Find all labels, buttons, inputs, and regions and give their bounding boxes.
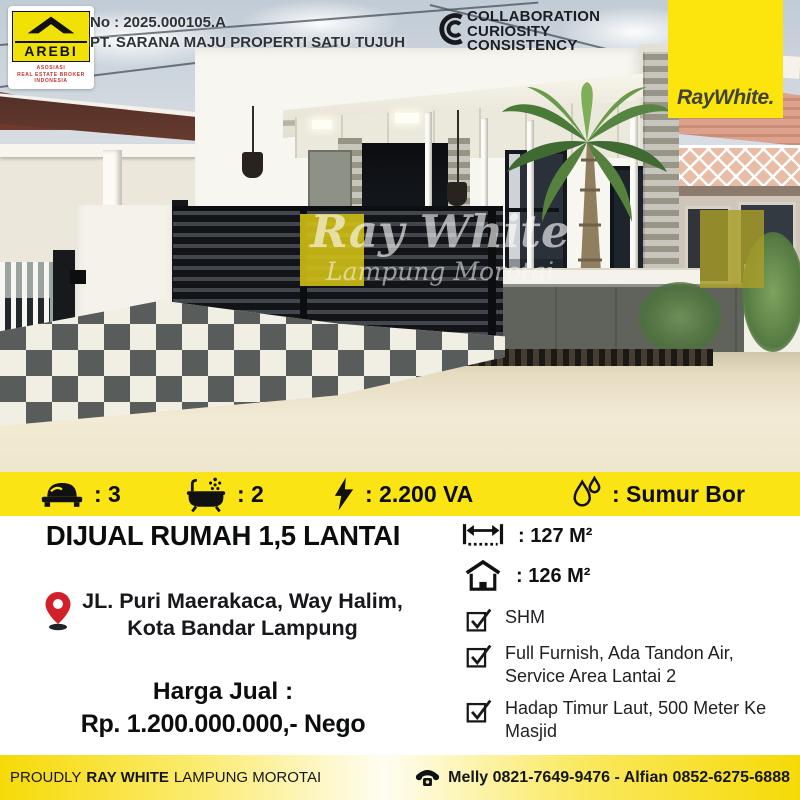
ceiling-light xyxy=(312,120,332,129)
triple-c-icon xyxy=(437,10,464,48)
location-pin-icon xyxy=(43,591,73,631)
checklist-item: Hadap Timur Laut, 500 Meter Ke Masjid xyxy=(466,697,786,743)
checklist-item: SHM xyxy=(466,606,786,633)
values-logo: COLLABORATION CURIOSITY CONSISTENCY xyxy=(437,10,600,54)
water-value: : Sumur Bor xyxy=(612,481,745,508)
footer-office: PROUDLY RAY WHITE LAMPUNG MOROTAI xyxy=(10,769,321,786)
address-lines: JL. Puri Maerakaca, Way Halim, Kota Band… xyxy=(82,588,403,642)
listing-header-text: No : 2025.000105.A PT. SARANA MAJU PROPE… xyxy=(90,13,405,53)
bedrooms-value: : 3 xyxy=(94,481,121,508)
phone-icon xyxy=(415,768,440,788)
feature-strip: : 3 : 2 : 2.200 VA : Sumur Bor xyxy=(0,472,800,516)
neighbor-right-lattice xyxy=(672,145,800,191)
company-name: PT. SARANA MAJU PROPERTI SATU TUJUH xyxy=(90,33,405,53)
house-icon xyxy=(464,560,502,593)
ceiling-light xyxy=(395,113,419,123)
values-line: CONSISTENCY xyxy=(467,39,600,54)
building-area-row: : 126 M² xyxy=(464,560,590,593)
checkbox-checked-icon xyxy=(466,607,492,633)
pendant-lamp-cord xyxy=(252,106,254,154)
arebi-roof-icon xyxy=(25,15,77,35)
water-icon xyxy=(570,476,602,512)
checklist-text: SHM xyxy=(505,606,545,633)
land-width-icon xyxy=(462,522,504,550)
raywhite-logo: RayWhite. xyxy=(668,0,783,118)
wall-plaque xyxy=(308,150,352,209)
arebi-logo: AREBI ASOSIASI REAL ESTATE BROKER INDONE… xyxy=(8,6,94,89)
pendant-lamp xyxy=(447,182,467,206)
feature-bathrooms: : 2 xyxy=(185,472,264,516)
checklist-text: Hadap Timur Laut, 500 Meter Ke Masjid xyxy=(505,697,783,743)
arebi-name: AREBI xyxy=(15,41,87,59)
listing-title: DIJUAL RUMAH 1,5 LANTAI xyxy=(0,520,446,552)
checkbox-checked-icon xyxy=(466,698,492,724)
property-flyer: Ray White Lampung Morotai AREBI ASOSIASI… xyxy=(0,0,800,800)
address-line2: Kota Bandar Lampung xyxy=(82,615,403,642)
bathrooms-value: : 2 xyxy=(237,481,264,508)
shrub xyxy=(638,282,722,354)
gate-hinge xyxy=(70,270,86,284)
price-value: Rp. 1.200.000.000,- Nego xyxy=(0,710,446,739)
power-value: : 2.200 VA xyxy=(365,481,473,508)
footer-proudly: PROUDLY xyxy=(10,769,81,786)
raywhite-wordmark: RayWhite. xyxy=(677,86,774,110)
footer-contacts: Melly 0821-7649-9476 - Alfian 0852-6275-… xyxy=(415,768,790,788)
arebi-subtitle: ASOSIASI REAL ESTATE BROKER INDONESIA xyxy=(12,65,90,85)
checklist-text: Full Furnish, Ada Tandon Air, Service Ar… xyxy=(505,642,783,688)
price-label: Harga Jual : xyxy=(0,678,446,706)
arebi-sub-line: INDONESIA xyxy=(12,78,90,85)
watermark-line2: Lampung Morotai xyxy=(295,259,585,285)
bolt-icon xyxy=(333,477,355,511)
arebi-logo-box: AREBI xyxy=(12,11,90,62)
footer-office-name: LAMPUNG MOROTAI xyxy=(174,769,321,786)
photo-watermark: Ray White Lampung Morotai xyxy=(295,208,585,286)
house-photo: Ray White Lampung Morotai AREBI ASOSIASI… xyxy=(0,0,800,472)
footer-brand: RAY WHITE xyxy=(86,769,169,786)
checklist-item: Full Furnish, Ada Tandon Air, Service Ar… xyxy=(466,642,786,688)
feature-checklist: SHM Full Furnish, Ada Tandon Air, Servic… xyxy=(466,606,786,752)
bath-icon xyxy=(185,475,227,513)
checkbox-checked-icon xyxy=(466,643,492,669)
address-block: JL. Puri Maerakaca, Way Halim, Kota Band… xyxy=(0,588,446,642)
watermark-line1: Ray White xyxy=(295,208,585,255)
land-area-row: : 127 M² xyxy=(462,522,592,550)
address-line1: JL. Puri Maerakaca, Way Halim, xyxy=(82,588,403,615)
feature-bedrooms: : 3 xyxy=(40,472,121,516)
values-lines: COLLABORATION CURIOSITY CONSISTENCY xyxy=(467,10,600,54)
building-area-value: : 126 M² xyxy=(516,565,590,588)
land-area-value: : 127 M² xyxy=(518,525,592,548)
pendant-lamp xyxy=(242,152,263,178)
footer-bar: PROUDLY RAY WHITE LAMPUNG MOROTAI Melly … xyxy=(0,755,800,800)
pendant-lamp-cord xyxy=(457,110,459,184)
footer-phone-numbers: Melly 0821-7649-9476 - Alfian 0852-6275-… xyxy=(448,769,790,787)
bed-icon xyxy=(40,478,84,510)
yellow-overlay-patch xyxy=(700,210,764,288)
feature-power: : 2.200 VA xyxy=(333,472,473,516)
listing-number: No : 2025.000105.A xyxy=(90,13,405,33)
feature-water: : Sumur Bor xyxy=(570,472,745,516)
